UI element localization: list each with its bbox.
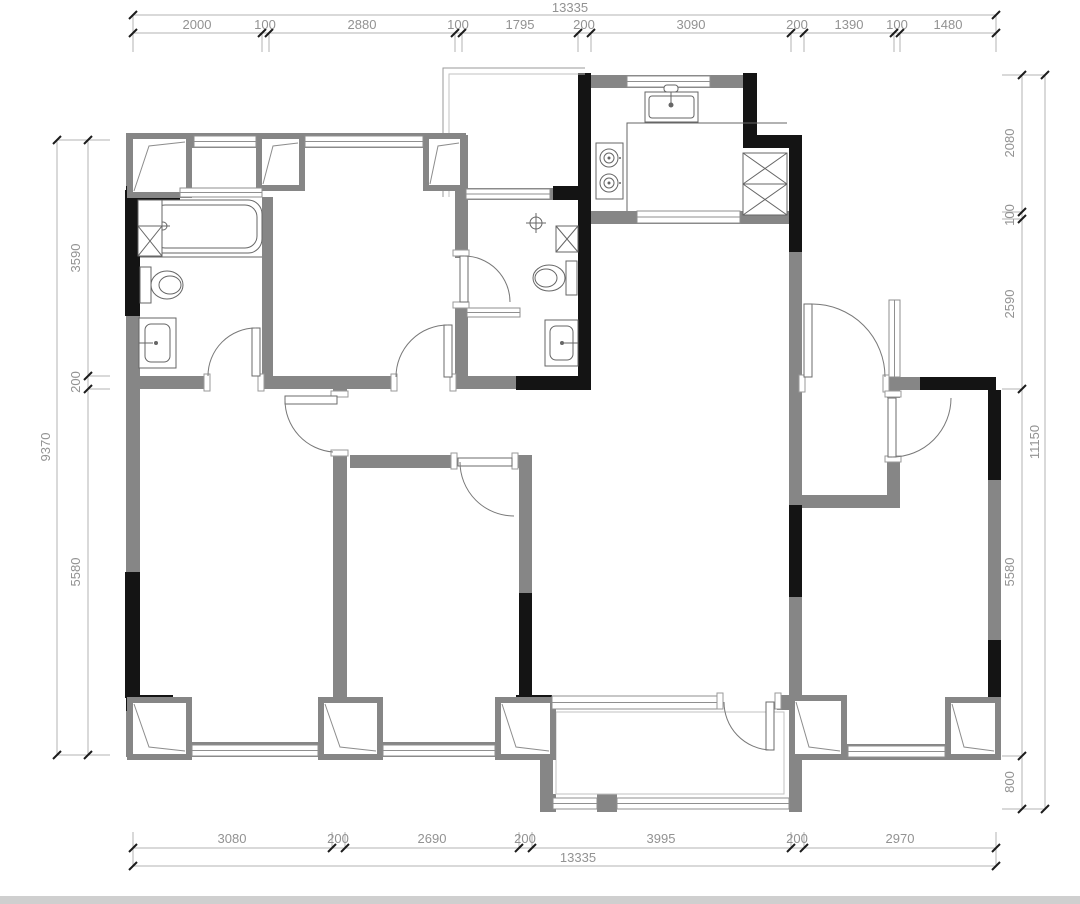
shower-partition	[467, 308, 520, 317]
page-bottom-bar	[0, 896, 1080, 904]
dim-label: 1390	[835, 17, 864, 32]
dimension-chain-top: 13335 2000 100 2880 100 1795 200 3090 20…	[129, 0, 1000, 52]
dim-label: 3590	[68, 244, 83, 273]
washing-machine	[556, 226, 578, 252]
dim-label: 100	[1002, 204, 1017, 226]
dim-label: 1480	[934, 17, 963, 32]
bedroom1-door	[285, 396, 337, 452]
south-balcony-rail	[556, 712, 784, 794]
dim-label: 2590	[1002, 290, 1017, 319]
dim-label: 3090	[677, 17, 706, 32]
floor-plan-drawing: 13335 2000 100 2880 100 1795 200 3090 20…	[0, 0, 1080, 904]
floor-drain	[526, 213, 546, 233]
balcony-door	[724, 702, 774, 750]
toilet	[533, 261, 577, 295]
dim-label: 9370	[38, 433, 53, 462]
window	[383, 745, 495, 756]
bay-box	[127, 697, 192, 760]
bedroom2-door	[458, 458, 514, 516]
dim-label: 100	[254, 17, 276, 32]
window	[180, 188, 262, 197]
bathroom1-door	[208, 328, 260, 376]
dim-label: 200	[573, 17, 595, 32]
master-bedroom-door	[888, 398, 951, 457]
dim-label: 5580	[1002, 558, 1017, 587]
dim-label: 11150	[1027, 425, 1042, 459]
dim-label: 13335	[552, 0, 588, 15]
dim-label: 5580	[68, 558, 83, 587]
suite-entry-door	[804, 304, 885, 377]
dim-label: 200	[68, 371, 83, 393]
dim-label: 2970	[886, 831, 915, 846]
dim-label: 100	[886, 17, 908, 32]
dim-label: 2000	[183, 17, 212, 32]
bathroom2-door	[460, 256, 510, 302]
bay-box	[423, 133, 466, 191]
dimension-chain-left: 3590 200 5580 9370	[38, 136, 110, 759]
dim-label: 2880	[348, 17, 377, 32]
dim-label: 200	[327, 831, 349, 846]
stove	[596, 143, 623, 199]
window	[848, 746, 945, 757]
window	[305, 136, 423, 147]
window	[617, 798, 789, 809]
washer-cabinet	[138, 200, 162, 256]
window	[192, 745, 318, 756]
window	[553, 798, 597, 809]
dim-label: 2690	[418, 831, 447, 846]
toilet	[140, 267, 183, 303]
floor-plan-canvas: 13335 2000 100 2880 100 1795 200 3090 20…	[0, 0, 1080, 904]
window	[637, 211, 740, 223]
window	[194, 136, 256, 147]
dim-label: 2080	[1002, 129, 1017, 158]
dim-label: 200	[786, 831, 808, 846]
bay-box	[789, 695, 847, 760]
dim-label: 13335	[560, 850, 596, 865]
bay-box	[945, 697, 1001, 760]
dim-label: 100	[447, 17, 469, 32]
dim-label: 800	[1002, 771, 1017, 793]
dimension-chain-right: 2080 100 2590 5580 800 11150	[1002, 71, 1049, 813]
window	[552, 696, 722, 709]
flue-shaft	[743, 153, 787, 215]
sink-vanity	[545, 320, 578, 366]
window	[466, 189, 550, 199]
kitchen-sink	[645, 85, 698, 122]
window-vertical	[889, 300, 900, 377]
dim-label: 3080	[218, 831, 247, 846]
dim-label: 200	[514, 831, 536, 846]
bay-box	[495, 697, 556, 760]
dimension-chain-bottom: 3080 200 2690 200 3995 200 2970 13335	[129, 831, 1000, 870]
bathtub	[148, 200, 262, 253]
bay-box	[256, 133, 305, 191]
north-bedroom-door	[396, 325, 452, 377]
bay-box	[318, 697, 383, 760]
dim-label: 1795	[506, 17, 535, 32]
dim-label: 3995	[647, 831, 676, 846]
dim-label: 200	[786, 17, 808, 32]
sink-vanity	[139, 318, 176, 368]
